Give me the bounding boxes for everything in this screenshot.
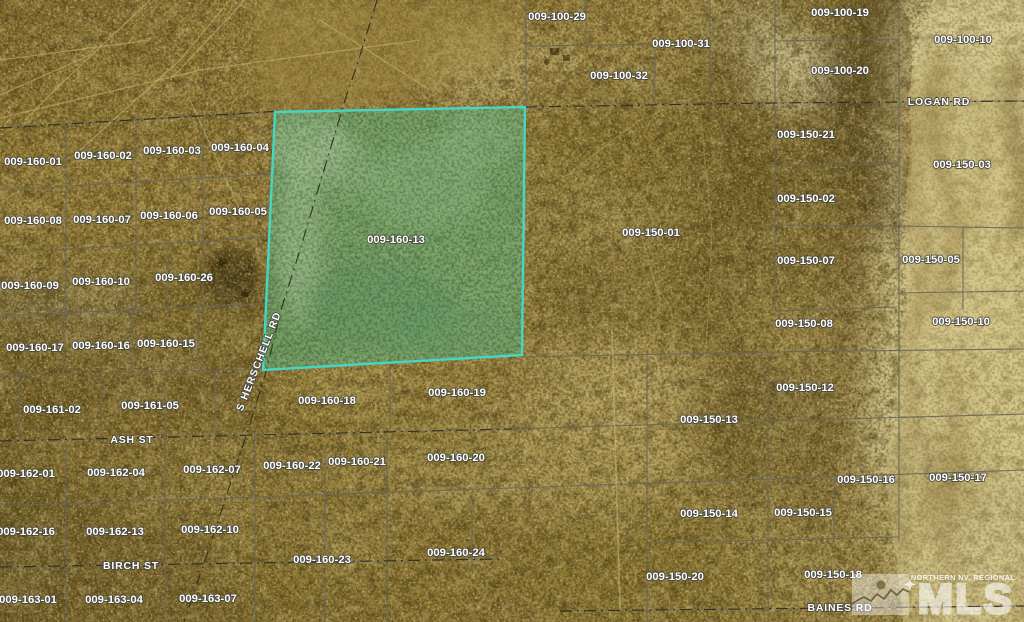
svg-text:009-160-05: 009-160-05 bbox=[209, 206, 267, 218]
svg-text:009-160-15: 009-160-15 bbox=[137, 338, 195, 350]
svg-text:009-150-13: 009-150-13 bbox=[680, 414, 738, 426]
svg-text:009-163-01: 009-163-01 bbox=[0, 594, 57, 606]
svg-text:009-150-03: 009-150-03 bbox=[933, 159, 991, 171]
svg-text:009-150-01: 009-150-01 bbox=[622, 227, 680, 239]
svg-text:009-161-02: 009-161-02 bbox=[23, 404, 81, 416]
svg-text:009-160-23: 009-160-23 bbox=[293, 554, 351, 566]
svg-text:009-160-18: 009-160-18 bbox=[298, 395, 356, 407]
svg-text:MLS: MLS bbox=[918, 575, 1014, 622]
svg-text:009-100-31: 009-100-31 bbox=[652, 38, 710, 50]
svg-text:009-160-19: 009-160-19 bbox=[428, 387, 486, 399]
svg-text:009-162-10: 009-162-10 bbox=[181, 524, 239, 536]
svg-text:009-150-12: 009-150-12 bbox=[776, 382, 834, 394]
svg-text:009-100-10: 009-100-10 bbox=[934, 34, 992, 46]
svg-text:009-163-04: 009-163-04 bbox=[85, 594, 144, 606]
svg-text:009-160-07: 009-160-07 bbox=[73, 214, 131, 226]
svg-text:009-150-21: 009-150-21 bbox=[777, 129, 835, 141]
svg-text:009-150-05: 009-150-05 bbox=[902, 254, 960, 266]
svg-text:009-100-20: 009-100-20 bbox=[811, 65, 869, 77]
svg-text:009-160-13: 009-160-13 bbox=[367, 234, 425, 246]
svg-text:009-162-01: 009-162-01 bbox=[0, 468, 55, 480]
svg-text:009-160-03: 009-160-03 bbox=[143, 145, 201, 157]
svg-text:009-160-26: 009-160-26 bbox=[155, 272, 213, 284]
svg-text:009-160-22: 009-160-22 bbox=[263, 460, 321, 472]
svg-text:009-160-06: 009-160-06 bbox=[140, 210, 198, 222]
svg-text:009-160-10: 009-160-10 bbox=[72, 276, 130, 288]
svg-text:009-150-14: 009-150-14 bbox=[680, 508, 739, 520]
svg-text:009-100-19: 009-100-19 bbox=[811, 7, 869, 19]
svg-text:LOGAN RD: LOGAN RD bbox=[908, 96, 970, 108]
svg-text:009-162-04: 009-162-04 bbox=[87, 467, 146, 479]
svg-text:009-160-01: 009-160-01 bbox=[4, 156, 62, 168]
svg-text:009-161-05: 009-161-05 bbox=[121, 400, 179, 412]
svg-text:009-150-16: 009-150-16 bbox=[837, 474, 895, 486]
svg-text:009-160-17: 009-160-17 bbox=[6, 342, 64, 354]
svg-text:009-100-29: 009-100-29 bbox=[528, 11, 586, 23]
svg-text:009-160-04: 009-160-04 bbox=[211, 142, 270, 154]
svg-text:009-160-08: 009-160-08 bbox=[4, 215, 62, 227]
svg-text:009-150-10: 009-150-10 bbox=[932, 316, 990, 328]
svg-text:009-160-24: 009-160-24 bbox=[427, 547, 486, 559]
svg-text:009-160-21: 009-160-21 bbox=[328, 456, 386, 468]
svg-text:009-163-07: 009-163-07 bbox=[179, 593, 237, 605]
svg-text:009-150-02: 009-150-02 bbox=[777, 193, 835, 205]
svg-text:009-150-08: 009-150-08 bbox=[775, 318, 833, 330]
svg-text:009-100-32: 009-100-32 bbox=[590, 70, 648, 82]
svg-text:009-150-15: 009-150-15 bbox=[774, 507, 832, 519]
svg-text:ASH ST: ASH ST bbox=[110, 434, 153, 446]
svg-text:009-150-07: 009-150-07 bbox=[777, 255, 835, 267]
svg-text:009-160-09: 009-160-09 bbox=[1, 280, 59, 292]
svg-text:009-162-07: 009-162-07 bbox=[183, 464, 241, 476]
svg-text:009-162-16: 009-162-16 bbox=[0, 526, 55, 538]
svg-text:009-150-20: 009-150-20 bbox=[646, 571, 704, 583]
svg-text:009-160-02: 009-160-02 bbox=[74, 150, 132, 162]
svg-text:009-160-20: 009-160-20 bbox=[427, 452, 485, 464]
svg-text:009-160-16: 009-160-16 bbox=[72, 340, 130, 352]
svg-text:009-162-13: 009-162-13 bbox=[86, 526, 144, 538]
svg-text:BIRCH ST: BIRCH ST bbox=[103, 560, 159, 572]
svg-text:009-150-17: 009-150-17 bbox=[929, 472, 987, 484]
